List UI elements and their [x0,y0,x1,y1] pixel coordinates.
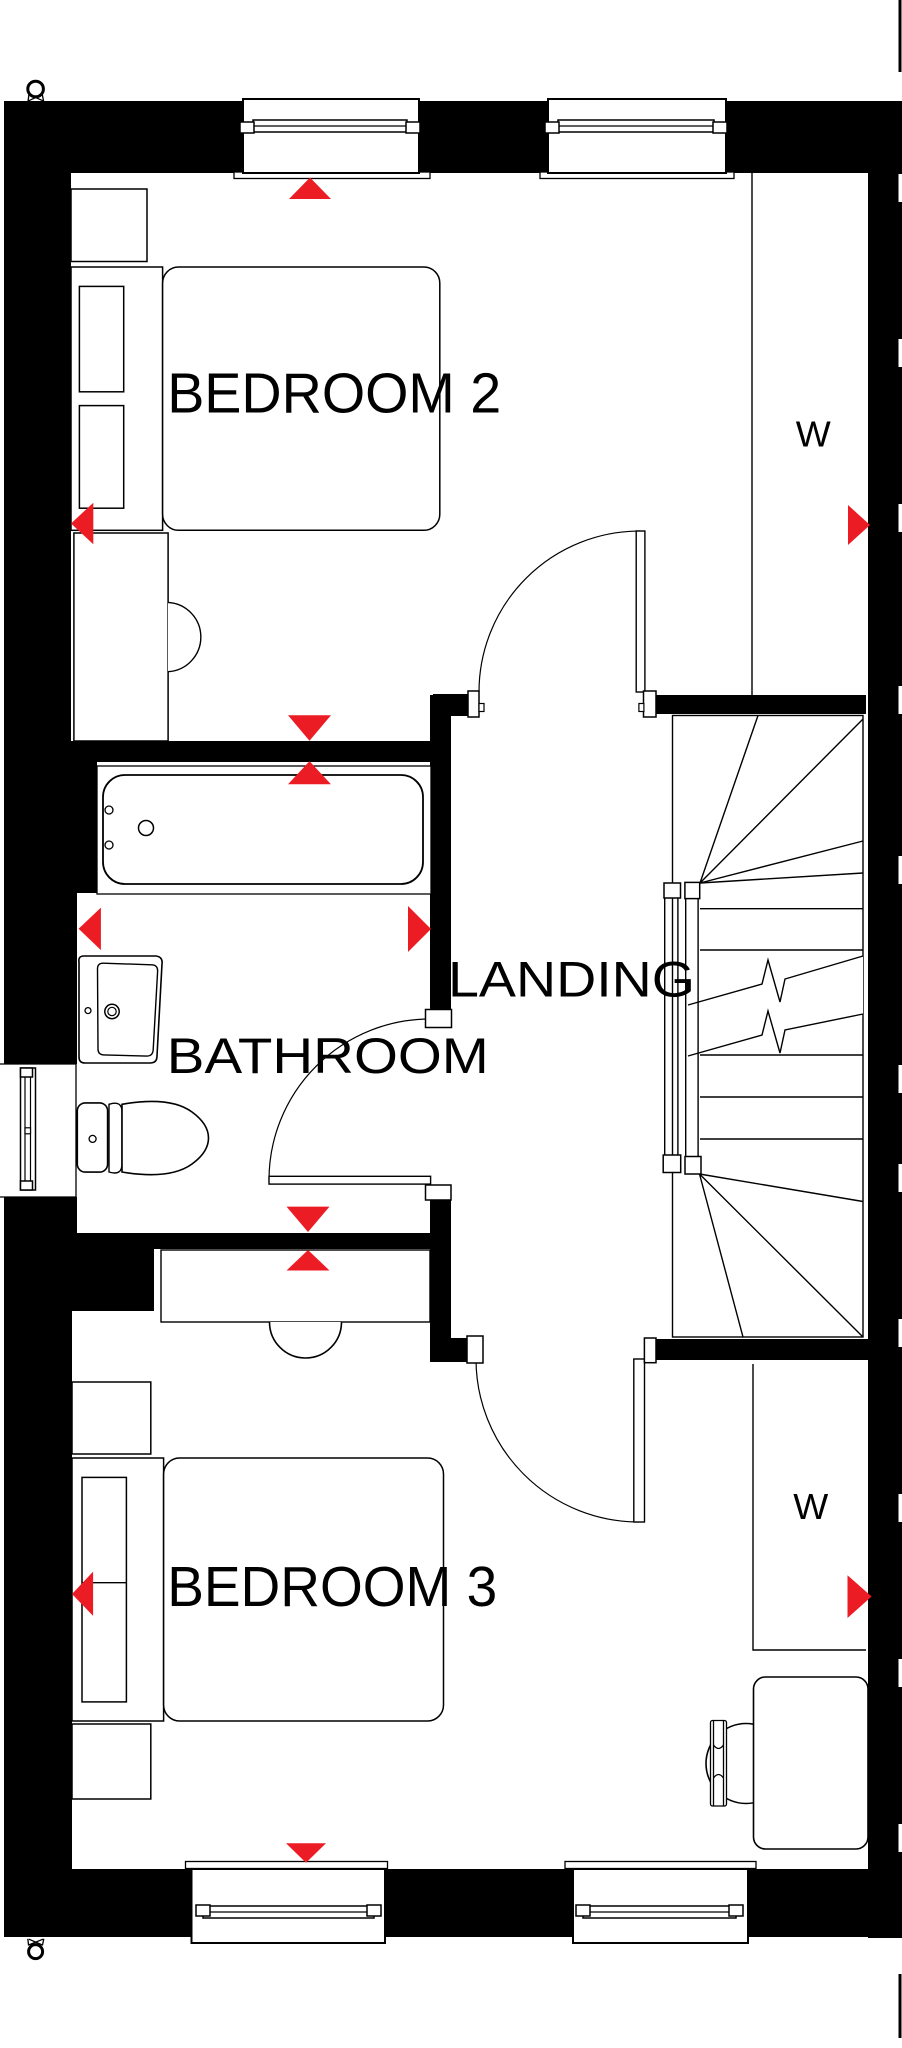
svg-text:LANDING: LANDING [448,951,695,1007]
svg-text:BEDROOM 3: BEDROOM 3 [167,1555,497,1619]
svg-text:W: W [796,413,831,454]
svg-text:BEDROOM 2: BEDROOM 2 [167,361,501,425]
svg-text:BATHROOM: BATHROOM [167,1028,489,1084]
svg-text:W: W [793,1486,828,1527]
